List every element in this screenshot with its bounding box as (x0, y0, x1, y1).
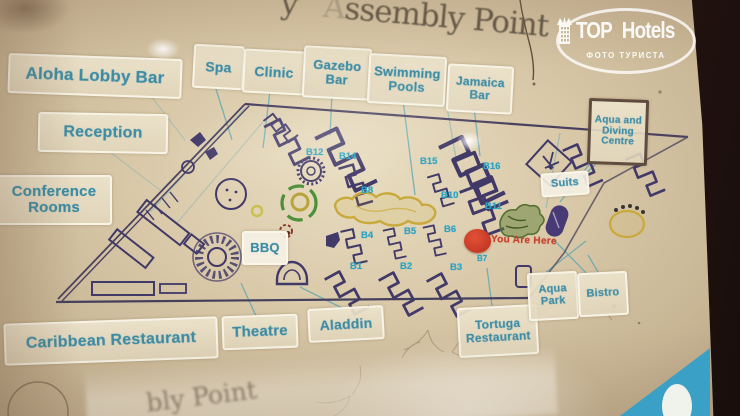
label-suits: Suits (540, 170, 590, 197)
sign-logo-oval (662, 384, 692, 416)
label-aqua-park: Aqua Park (527, 271, 579, 322)
photo-of-resort-map-sign: yAssembly Point bly Point Aloha Lobby Ba… (0, 0, 740, 416)
label-conference-rooms: Conference Rooms (0, 175, 112, 225)
label-swimming-pools: Swimming Pools (367, 53, 448, 107)
building-label-b8: B8 (361, 185, 373, 196)
building-label-b7: B7 (477, 254, 487, 263)
building-label-b16: B16 (483, 161, 500, 172)
label-clinic: Clinic (242, 48, 306, 95)
label-jamaica-bar: Jamaica Bar (446, 63, 514, 114)
label-aladdin: Aladdin (307, 305, 385, 343)
building-label-b2: B2 (400, 261, 412, 272)
building-label-b6: B6 (444, 224, 456, 235)
building-label-b15: B15 (420, 156, 437, 167)
building-label-b10: B10 (441, 190, 458, 201)
building-label-b11: B11 (485, 201, 502, 212)
building-label-b5: B5 (404, 226, 416, 237)
label-tortuga-restaurant: Tortuga Restaurant (457, 304, 540, 358)
label-caribbean-restaurant: Caribbean Restaurant (3, 316, 218, 365)
label-theatre: Theatre (221, 314, 298, 351)
you-are-here-marker (464, 229, 491, 253)
label-bbq: BBQ (242, 231, 288, 265)
you-are-here-text: You Are Here (491, 234, 557, 247)
building-label-b12: B12 (306, 147, 323, 158)
label-reception: Reception (38, 112, 169, 154)
building-label-b14: B14 (339, 151, 356, 162)
building-label-b4: B4 (361, 230, 373, 241)
label-aqua-and-diving-centre: Aqua and Diving Centre (587, 98, 649, 166)
label-gazebo-bar: Gazebo Bar (302, 45, 373, 100)
label-bistro: Bistro (577, 271, 629, 318)
building-label-b1: B1 (350, 261, 362, 272)
building-label-b3: B3 (450, 262, 462, 273)
label-spa: Spa (192, 44, 245, 91)
label-aloha-lobby-bar: Aloha Lobby Bar (7, 53, 182, 99)
